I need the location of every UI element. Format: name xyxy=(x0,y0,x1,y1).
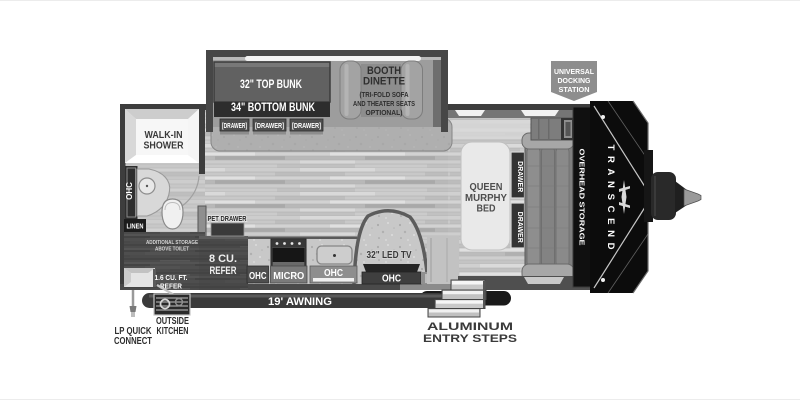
svg-text:[DRAWER]: [DRAWER] xyxy=(292,121,321,130)
svg-text:DRAWER: DRAWER xyxy=(516,161,523,192)
svg-text:WALK-IN: WALK-IN xyxy=(145,130,183,141)
svg-text:CONNECT: CONNECT xyxy=(114,336,152,347)
svg-text:LINEN: LINEN xyxy=(127,224,144,231)
svg-text:STATION: STATION xyxy=(559,85,590,94)
svg-text:DRAWER: DRAWER xyxy=(516,212,523,243)
svg-text:DINETTE: DINETTE xyxy=(363,76,405,88)
svg-text:32" LED TV: 32" LED TV xyxy=(367,249,412,261)
svg-text:TRANSCEND: TRANSCEND xyxy=(605,145,616,250)
svg-text:32" TOP BUNK: 32" TOP BUNK xyxy=(240,79,303,91)
svg-text:ENTRY STEPS: ENTRY STEPS xyxy=(423,333,517,345)
svg-text:34" BOTTOM BUNK: 34" BOTTOM BUNK xyxy=(231,102,316,114)
svg-text:REFER: REFER xyxy=(210,265,237,277)
svg-text:PET DRAWER: PET DRAWER xyxy=(208,214,248,223)
svg-text:OPTIONAL): OPTIONAL) xyxy=(366,108,403,117)
svg-text:UNIVERSAL: UNIVERSAL xyxy=(554,67,594,76)
svg-text:SHOWER: SHOWER xyxy=(144,141,185,152)
svg-text:OHC: OHC xyxy=(125,182,134,200)
svg-text:19' AWNING: 19' AWNING xyxy=(268,296,332,308)
svg-text:OVERHEAD STORAGE: OVERHEAD STORAGE xyxy=(578,149,587,246)
svg-text:ALUMINUM: ALUMINUM xyxy=(427,321,513,333)
svg-text:OHC: OHC xyxy=(249,270,267,282)
svg-text:DOCKING: DOCKING xyxy=(558,76,591,85)
svg-text:[DRAWER]: [DRAWER] xyxy=(255,121,284,130)
svg-text:ADDITIONAL STORAGE: ADDITIONAL STORAGE xyxy=(146,240,198,246)
svg-text:KITCHEN: KITCHEN xyxy=(157,326,189,337)
svg-text:OHC: OHC xyxy=(382,273,401,285)
svg-text:8 CU.: 8 CU. xyxy=(209,253,237,265)
svg-text:BED: BED xyxy=(477,203,496,215)
svg-text:MICRO: MICRO xyxy=(273,270,304,282)
svg-text:AND THEATER SEATS: AND THEATER SEATS xyxy=(353,99,415,108)
svg-text:ABOVE TOILET: ABOVE TOILET xyxy=(155,247,189,253)
svg-text:[DRAWER]: [DRAWER] xyxy=(222,121,247,130)
svg-text:(TRI-FOLD SOFA: (TRI-FOLD SOFA xyxy=(360,90,409,99)
svg-text:OHC: OHC xyxy=(324,267,343,279)
